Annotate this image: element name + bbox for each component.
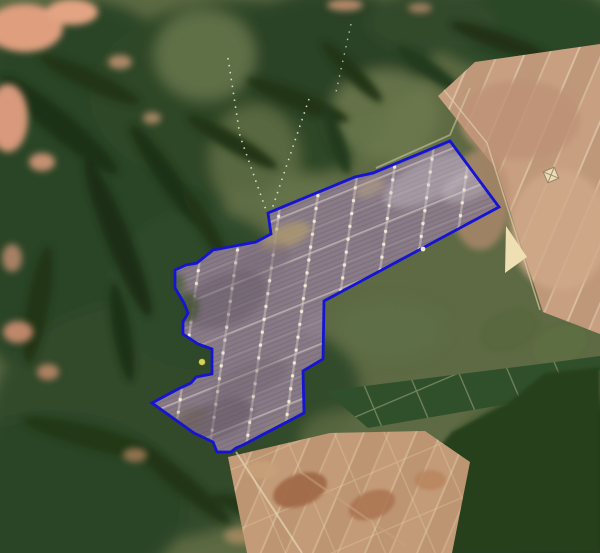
satellite-map — [0, 0, 600, 553]
satellite-image — [0, 0, 600, 553]
yellow-structure — [199, 359, 206, 366]
farm-fields-south — [228, 431, 470, 553]
bright-spot — [421, 247, 426, 252]
